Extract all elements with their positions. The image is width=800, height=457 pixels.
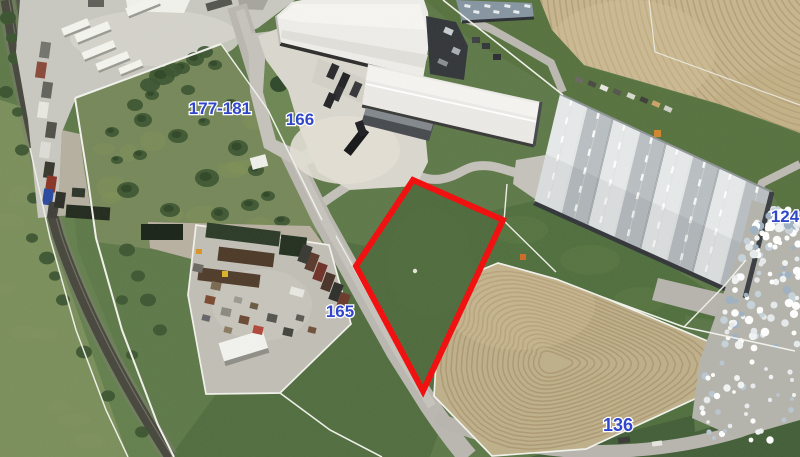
svg-text:177-181: 177-181 bbox=[189, 99, 251, 118]
svg-text:165: 165 bbox=[326, 302, 354, 321]
svg-text:136: 136 bbox=[603, 415, 633, 435]
svg-text:124: 124 bbox=[771, 207, 800, 226]
svg-text:166: 166 bbox=[286, 110, 314, 129]
